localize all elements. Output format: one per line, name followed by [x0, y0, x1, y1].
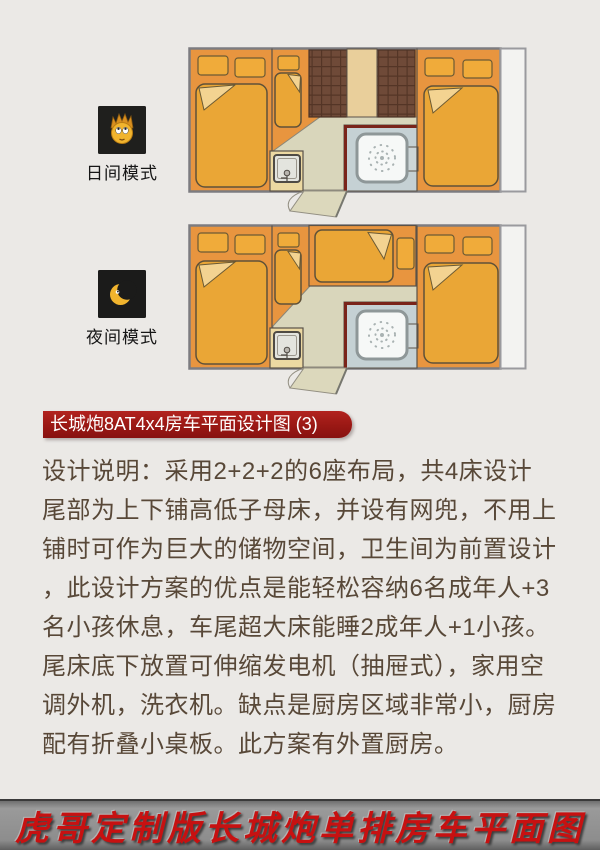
design-description: 设计说明：采用2+2+2的6座布局，共4床设计 尾部为上下铺高低子母床，并设有网… [42, 452, 562, 764]
sun-face-icon [98, 106, 146, 154]
description-line: 调外机，洗衣机。缺点是厨房区域非常小，厨房 [42, 686, 562, 725]
footer-banner-text: 虎哥定制版长城炮单排房车平面图 [15, 801, 585, 850]
bunk-bed [275, 233, 301, 304]
center-converted-bed [309, 226, 416, 287]
infographic-page: 日间模式 夜间模式 [0, 0, 600, 850]
entry-door [288, 368, 347, 394]
footer-banner: 虎哥定制版长城炮单排房车平面图 [0, 799, 600, 850]
night-floorplan [188, 224, 527, 399]
description-line: ，此设计方案的优点是能轻松容纳6名成年人+3 [42, 569, 562, 608]
description-line: 名小孩休息，车尾超大床能睡2成年人+1小孩。 [42, 608, 562, 647]
description-line: 配有折叠小桌板。此方案有外置厨房。 [42, 725, 562, 764]
entry-door [288, 191, 347, 217]
crescent-moon-icon [98, 270, 146, 318]
bathroom [344, 125, 418, 191]
night-mode-block: 夜间模式 [72, 270, 172, 348]
description-line: 铺时可作为巨大的储物空间，卫生间为前置设计 [42, 530, 562, 569]
day-mode-block: 日间模式 [72, 106, 172, 184]
fold-table [347, 49, 377, 117]
description-line: 设计说明：采用2+2+2的6座布局，共4床设计 [42, 452, 562, 491]
kitchen-sink [270, 328, 303, 368]
description-line: 尾床底下放置可伸缩发电机（抽屉式），家用空 [42, 647, 562, 686]
plan-title-banner: 长城炮8AT4x4房车平面设计图 (3) [43, 411, 352, 438]
bathroom [344, 302, 418, 368]
shower-tray [357, 311, 407, 359]
day-floorplan [188, 47, 527, 222]
night-mode-label: 夜间模式 [72, 323, 172, 348]
shower-tray [357, 134, 407, 182]
description-line: 尾部为上下铺高低子母床，并设有网兜，不用上 [42, 491, 562, 530]
kitchen-tiles [309, 49, 415, 117]
kitchen-sink [270, 151, 303, 191]
bunk-bed [275, 56, 301, 127]
day-mode-label: 日间模式 [72, 159, 172, 184]
